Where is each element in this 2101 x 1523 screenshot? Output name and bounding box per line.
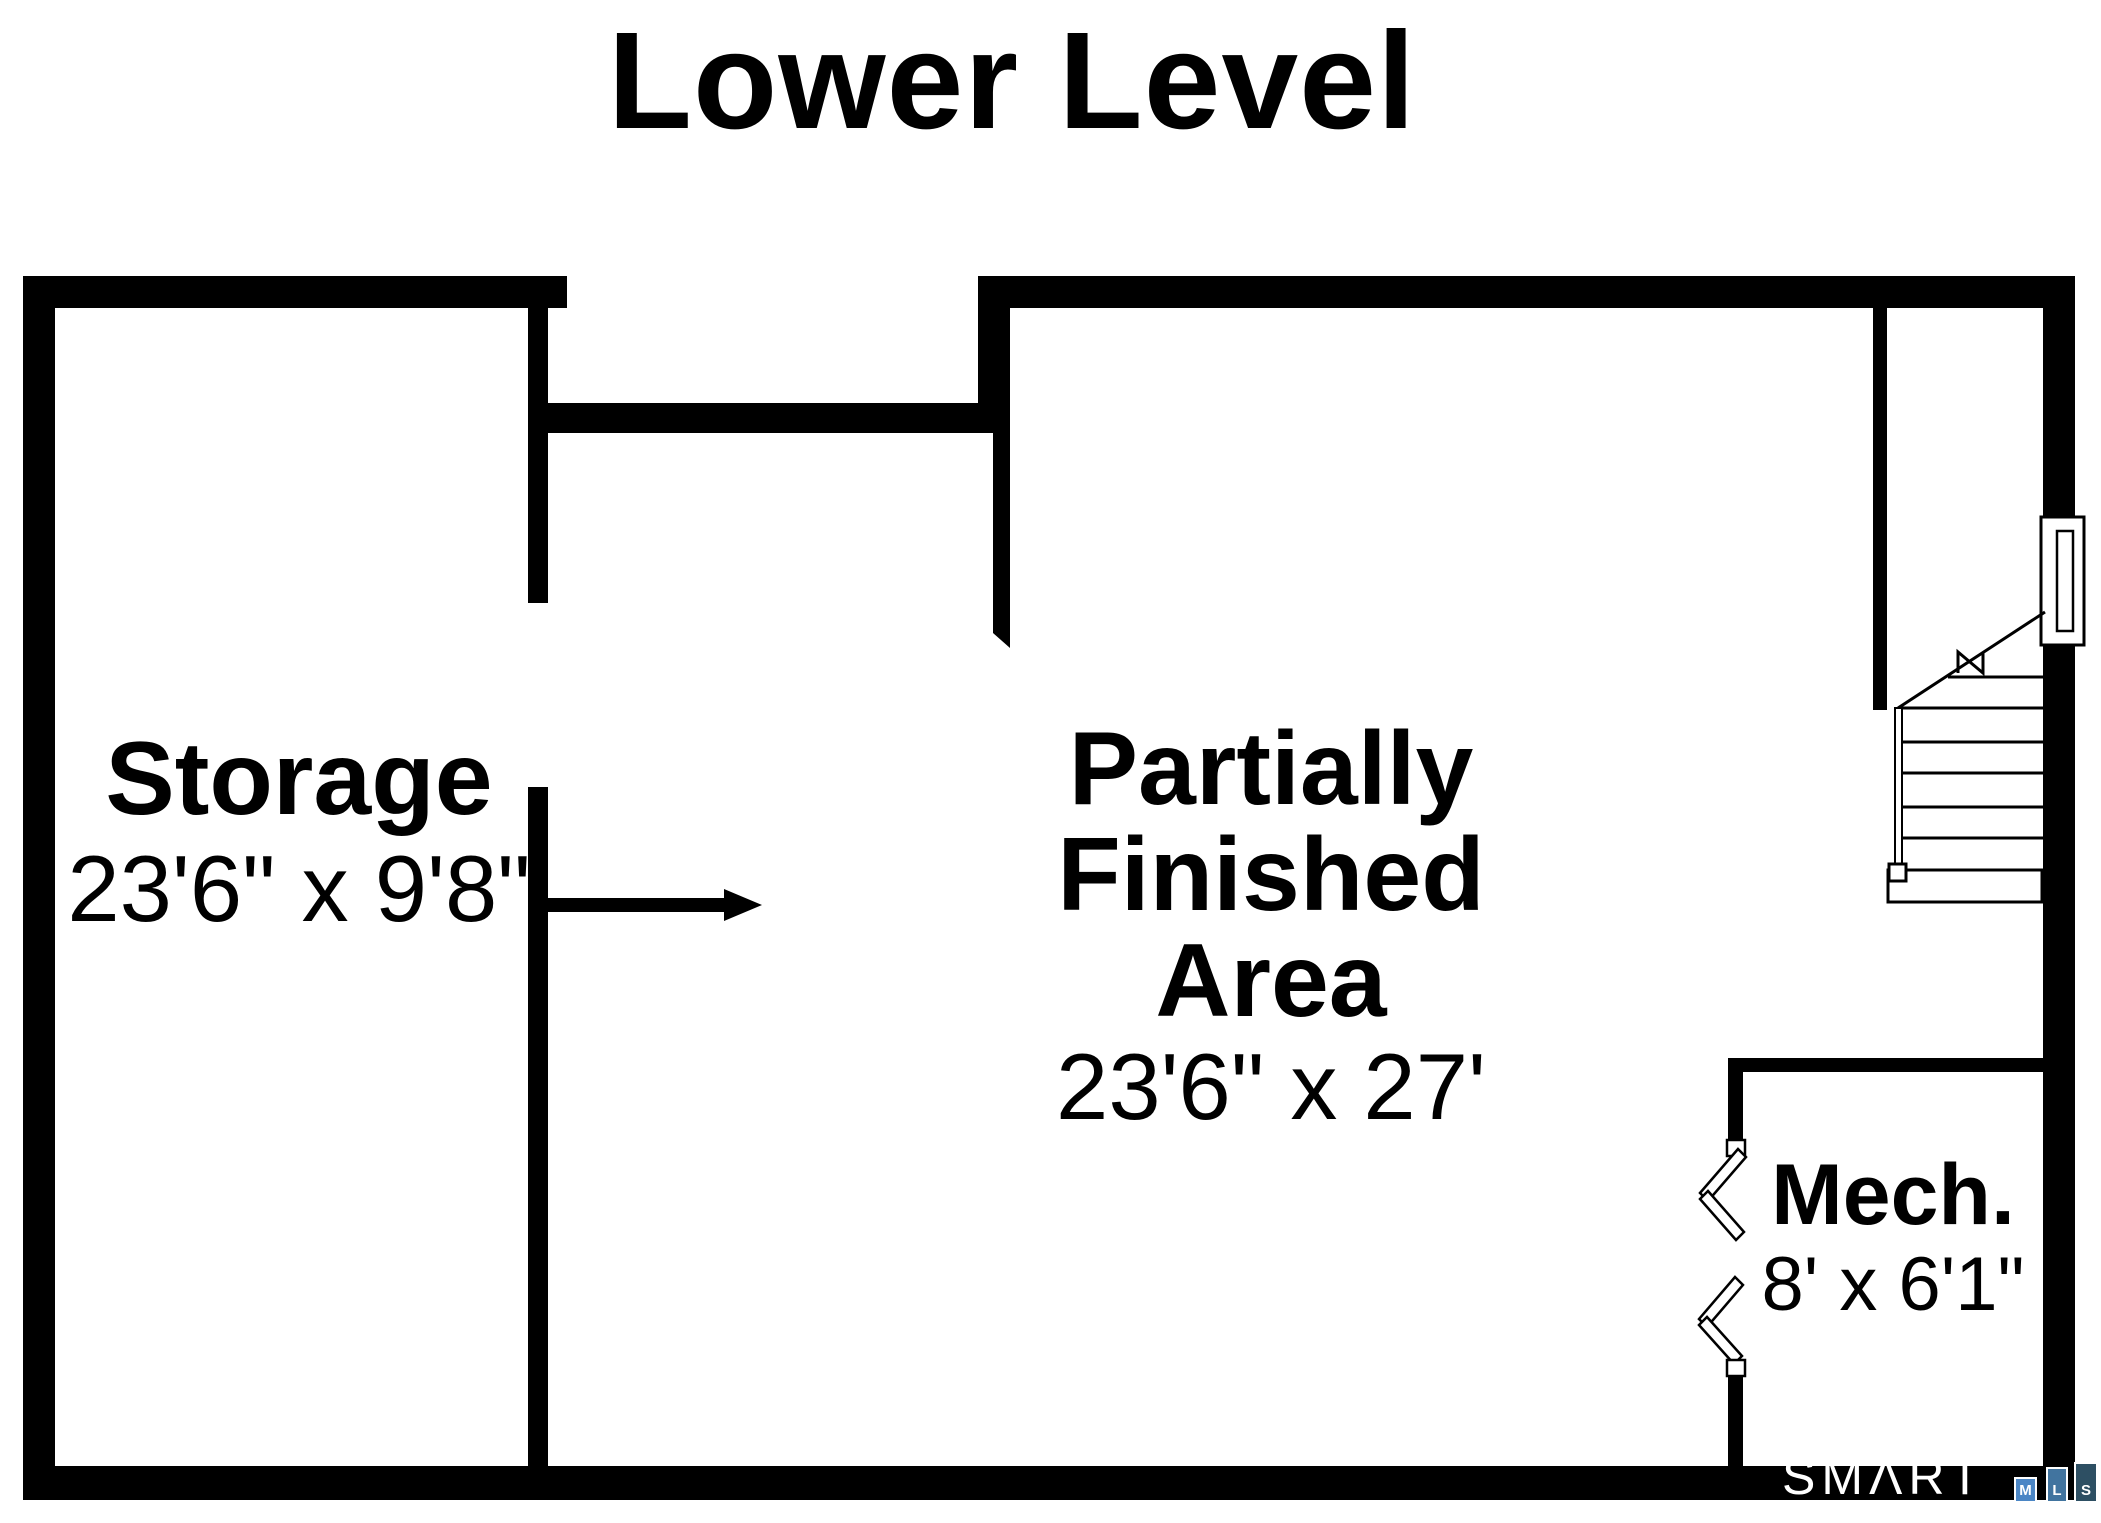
room-label-storage: Storage 23'6" x 9'8" (67, 724, 530, 944)
room-name: Area (1056, 928, 1486, 1034)
room-label-mech: Mech. 8' x 6'1" (1761, 1150, 2024, 1330)
stair-landing (1888, 870, 2042, 902)
door-jamb (1727, 1360, 1745, 1376)
bifold-leaf (1699, 1317, 1742, 1364)
room-name: Mech. (1761, 1150, 2024, 1240)
mls-square-letter: M (2019, 1483, 2032, 1501)
mls-square-l: L (2046, 1467, 2068, 1503)
door-swing-arrow-icon (540, 889, 762, 921)
stair-handrail (1895, 708, 1902, 865)
smartmls-logo: SMΛRT (1782, 1452, 1986, 1502)
floor-plan-page: Lower Level (0, 0, 2101, 1523)
window-sash (2057, 531, 2073, 631)
bifold-leaf (1700, 1191, 1744, 1240)
stair-newel-post (1889, 864, 1906, 881)
window-icon (2041, 517, 2084, 645)
room-dimensions: 23'6" x 27' (1056, 1034, 1486, 1140)
stairs-icon (1888, 612, 2045, 902)
stair-stringer-diagonal (1898, 612, 2045, 708)
mls-square-s: S (2074, 1462, 2098, 1503)
room-dimensions: 8' x 6'1" (1761, 1240, 2024, 1330)
mls-square-m: M (2014, 1477, 2037, 1503)
room-label-partially-finished-area: Partially Finished Area 23'6" x 27' (1056, 716, 1486, 1140)
mls-square-letter: L (2052, 1483, 2061, 1501)
room-dimensions: 23'6" x 9'8" (67, 834, 530, 944)
room-name: Storage (67, 724, 530, 834)
bifold-door-icon (1699, 1140, 1746, 1376)
room-name: Finished (1056, 822, 1486, 928)
room-name: Partially (1056, 716, 1486, 822)
mls-square-letter: S (2081, 1483, 2091, 1501)
